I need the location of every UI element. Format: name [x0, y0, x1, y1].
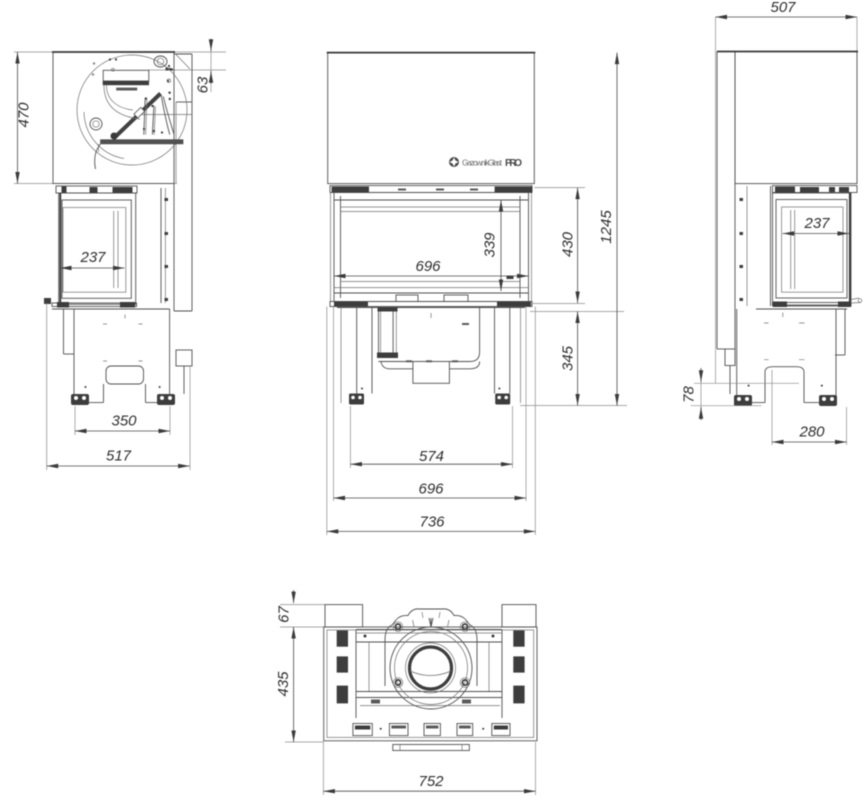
- svg-text:435: 435: [275, 671, 292, 697]
- svg-text:574: 574: [419, 448, 444, 465]
- svg-text:1245: 1245: [598, 210, 615, 244]
- svg-text:517: 517: [106, 448, 132, 465]
- svg-text:339: 339: [482, 232, 499, 258]
- svg-text:63: 63: [195, 76, 212, 93]
- svg-text:78: 78: [681, 386, 698, 403]
- svg-text:237: 237: [79, 249, 106, 266]
- svg-text:696: 696: [415, 258, 441, 275]
- svg-text:280: 280: [798, 424, 825, 441]
- svg-text:345: 345: [560, 345, 577, 371]
- svg-text:PRO: PRO: [505, 158, 522, 169]
- svg-text:696: 696: [418, 481, 444, 498]
- svg-text:752: 752: [418, 773, 444, 790]
- svg-text:237: 237: [803, 215, 830, 232]
- svg-text:736: 736: [419, 514, 445, 531]
- svg-text:470: 470: [16, 102, 33, 128]
- svg-text:507: 507: [770, 0, 796, 16]
- svg-text:350: 350: [111, 413, 137, 430]
- svg-text:GazownikGlast: GazownikGlast: [462, 159, 503, 168]
- svg-text:67: 67: [276, 606, 293, 623]
- svg-text:430: 430: [560, 231, 577, 257]
